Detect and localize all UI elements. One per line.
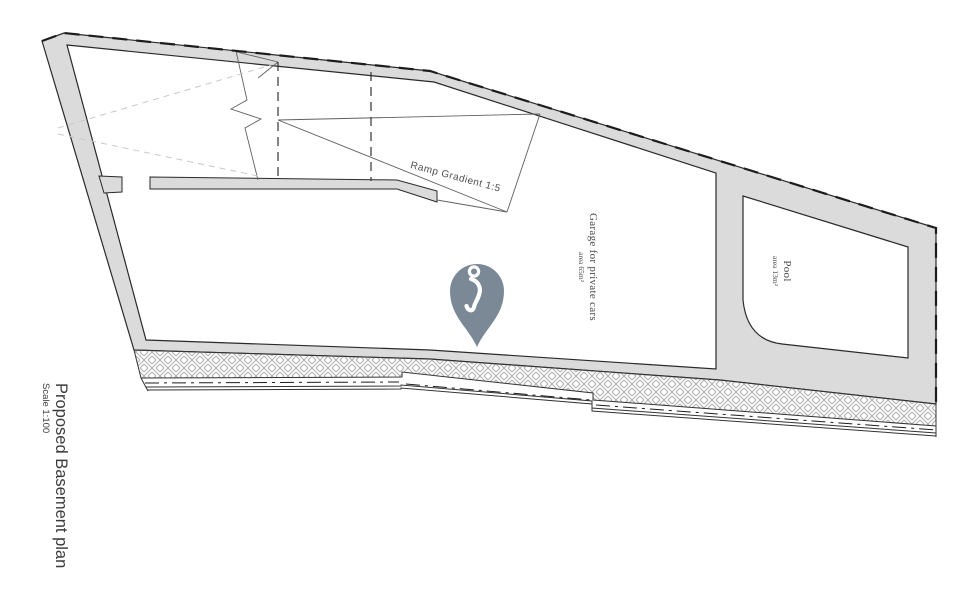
garage-name-label: Garage for private cars	[586, 202, 599, 332]
ramp-side-wall	[150, 177, 437, 202]
pool-name-label: Pool	[780, 248, 793, 294]
break-line	[231, 51, 261, 180]
plan-drawing	[0, 0, 954, 602]
ramp-dashed-lines	[278, 62, 371, 181]
pool-area-label: area 13m²	[770, 248, 780, 294]
ramp-edge-line	[507, 114, 540, 212]
location-pin-icon[interactable]	[450, 264, 504, 347]
ramp-structure	[58, 51, 540, 212]
ramp-edge-line	[437, 200, 507, 212]
pool-label: Pool area 13m²	[770, 248, 793, 294]
road-channel-left-cap	[141, 378, 148, 391]
plan-scale: Scale 1:100	[39, 383, 51, 568]
basement-plan-canvas: Ramp Gradient 1:5 Garage for private car…	[0, 0, 954, 602]
garage-area-label: area 65m²	[576, 202, 586, 332]
ramp-edge-line	[278, 114, 540, 120]
plan-title: Proposed Basement plan	[51, 383, 71, 568]
ramp-edge-line	[278, 120, 507, 212]
garage-label: Garage for private cars area 65m²	[576, 202, 599, 332]
title-block: Proposed Basement plan Scale 1:100	[39, 383, 71, 568]
projection-dashed-line	[58, 63, 278, 128]
site-wall-band	[42, 33, 936, 404]
